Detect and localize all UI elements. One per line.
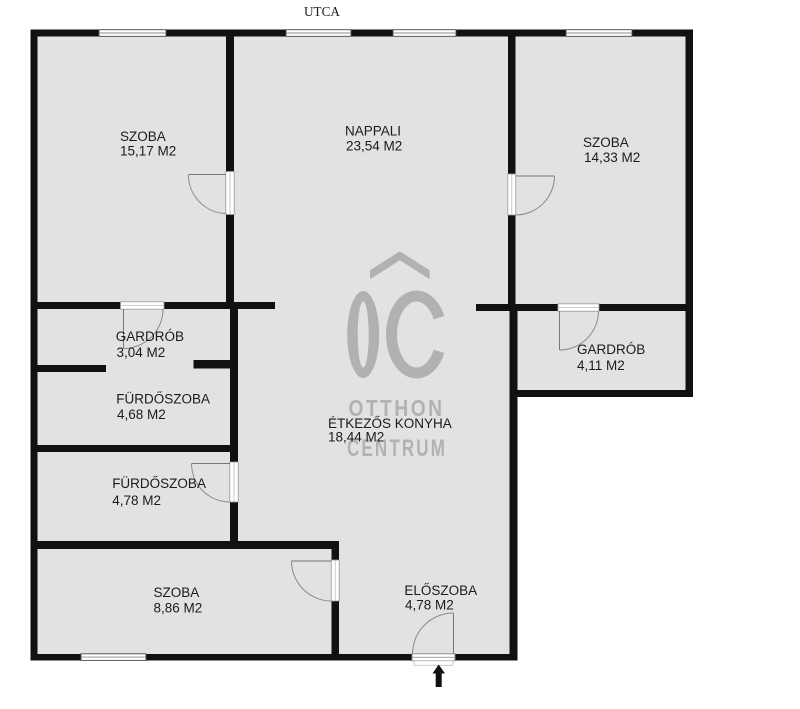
svg-text:14,33 M2: 14,33 M2 bbox=[584, 150, 640, 165]
svg-text:23,54 M2: 23,54 M2 bbox=[346, 139, 402, 154]
svg-text:ELŐSZOBA: ELŐSZOBA bbox=[404, 583, 477, 598]
svg-text:GARDRÓB: GARDRÓB bbox=[116, 329, 184, 344]
svg-text:8,86 M2: 8,86 M2 bbox=[154, 601, 203, 616]
svg-text:15,17 M2: 15,17 M2 bbox=[120, 144, 176, 159]
svg-text:UTCA: UTCA bbox=[304, 4, 340, 19]
svg-text:FÜRDŐSZOBA: FÜRDŐSZOBA bbox=[112, 476, 206, 491]
svg-text:FÜRDŐSZOBA: FÜRDŐSZOBA bbox=[116, 392, 210, 407]
svg-text:SZOBA: SZOBA bbox=[154, 585, 200, 600]
svg-text:4,78 M2: 4,78 M2 bbox=[112, 493, 161, 508]
svg-text:4,68 M2: 4,68 M2 bbox=[117, 407, 166, 422]
svg-text:4,78 M2: 4,78 M2 bbox=[405, 598, 454, 613]
svg-text:SZOBA: SZOBA bbox=[583, 135, 629, 150]
svg-text:3,04 M2: 3,04 M2 bbox=[117, 345, 166, 360]
svg-text:SZOBA: SZOBA bbox=[120, 129, 166, 144]
svg-text:NAPPALI: NAPPALI bbox=[345, 124, 401, 139]
svg-text:4,11 M2: 4,11 M2 bbox=[577, 358, 625, 373]
svg-text:GARDRÓB: GARDRÓB bbox=[577, 342, 645, 357]
svg-text:18,44 M2: 18,44 M2 bbox=[328, 429, 384, 444]
